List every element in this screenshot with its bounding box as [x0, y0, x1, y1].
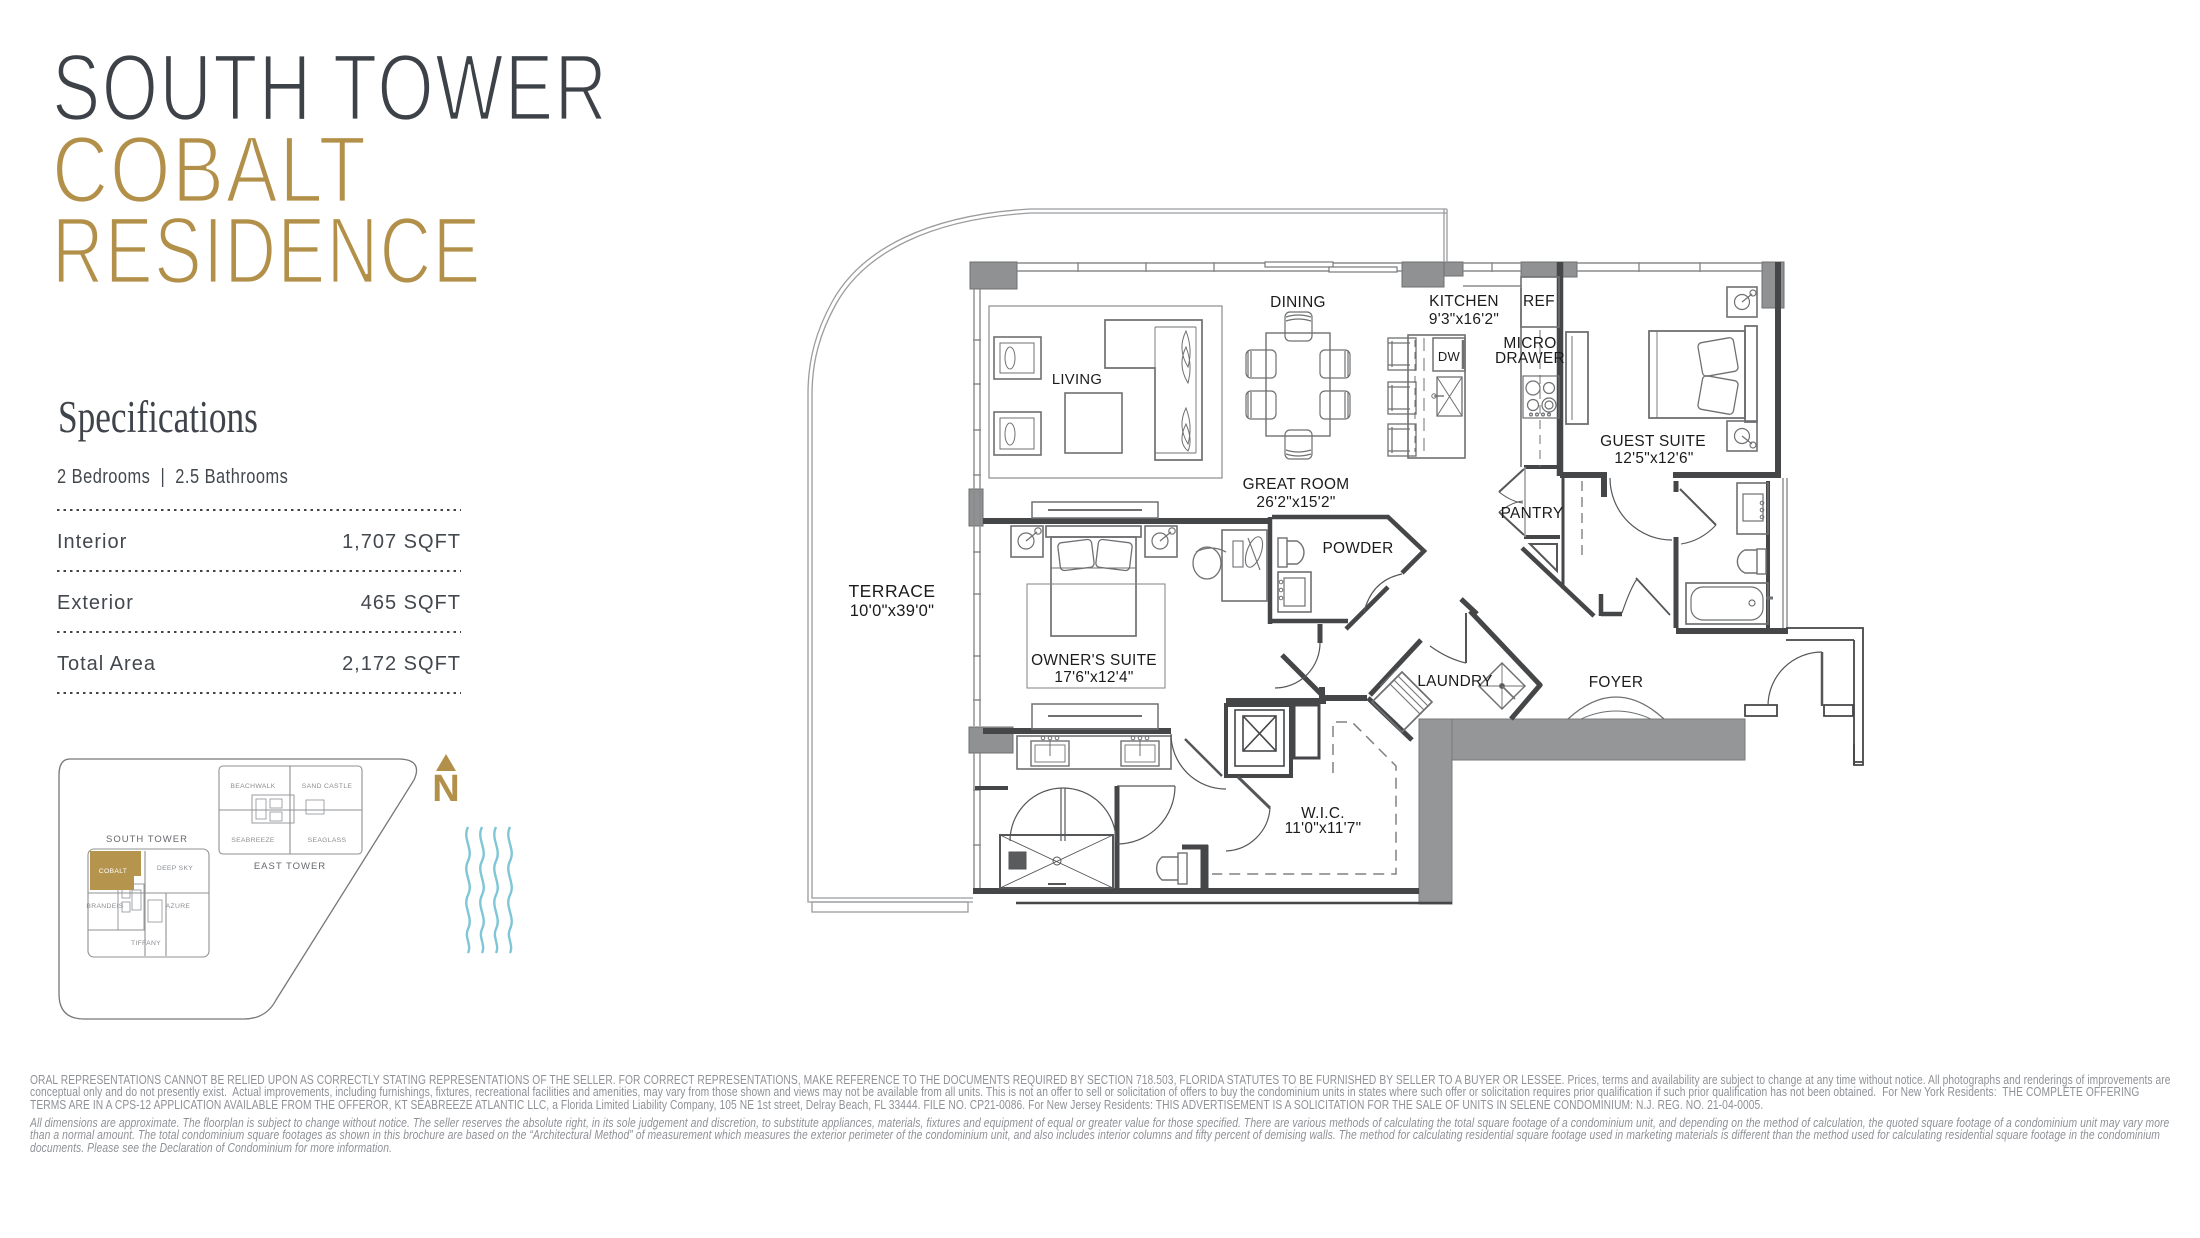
svg-text:AZURE: AZURE [166, 903, 191, 910]
svg-text:COBALT: COBALT [99, 868, 128, 875]
svg-text:TIFFANY: TIFFANY [131, 940, 161, 947]
svg-text:OWNER'S SUITE: OWNER'S SUITE [1031, 652, 1157, 669]
svg-text:EAST TOWER: EAST TOWER [254, 861, 326, 872]
svg-text:N: N [432, 768, 459, 810]
svg-text:DRAWER: DRAWER [1495, 350, 1565, 367]
svg-text:BEACHWALK: BEACHWALK [230, 783, 275, 790]
svg-text:SOUTH TOWER: SOUTH TOWER [106, 834, 188, 845]
svg-text:DINING: DINING [1270, 294, 1326, 311]
svg-text:GUEST SUITE: GUEST SUITE [1600, 433, 1706, 450]
svg-text:12'5"x12'6": 12'5"x12'6" [1614, 450, 1693, 467]
svg-text:11'0"x11'7": 11'0"x11'7" [1285, 820, 1362, 837]
svg-text:26'2"x15'2": 26'2"x15'2" [1256, 494, 1335, 511]
svg-text:DEEP SKY: DEEP SKY [157, 865, 193, 872]
svg-text:DW: DW [1438, 349, 1461, 364]
svg-text:SAND CASTLE: SAND CASTLE [302, 783, 353, 790]
svg-text:9'3"x16'2": 9'3"x16'2" [1429, 311, 1499, 328]
svg-text:SEABREEZE: SEABREEZE [231, 837, 275, 844]
svg-text:REF: REF [1523, 293, 1555, 310]
svg-text:10'0"x39'0": 10'0"x39'0" [850, 602, 935, 620]
svg-text:LIVING: LIVING [1052, 372, 1102, 388]
svg-text:GREAT ROOM: GREAT ROOM [1243, 476, 1350, 493]
svg-text:BRANDEIS: BRANDEIS [86, 903, 123, 910]
svg-text:LAUNDRY: LAUNDRY [1417, 673, 1492, 690]
svg-text:POWDER: POWDER [1322, 540, 1393, 557]
svg-text:FOYER: FOYER [1589, 674, 1644, 691]
svg-text:SEAGLASS: SEAGLASS [308, 837, 347, 844]
svg-text:TERRACE: TERRACE [848, 581, 935, 601]
svg-text:KITCHEN: KITCHEN [1429, 293, 1499, 310]
svg-text:17'6"x12'4": 17'6"x12'4" [1054, 669, 1133, 686]
svg-text:PANTRY: PANTRY [1501, 505, 1564, 522]
